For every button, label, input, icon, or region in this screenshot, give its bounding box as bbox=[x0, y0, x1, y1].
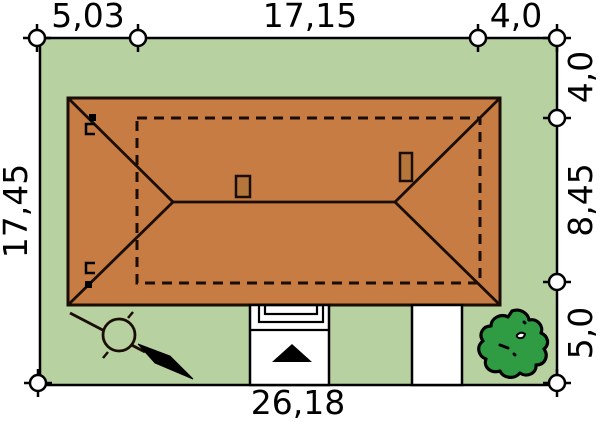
survey-point bbox=[29, 30, 45, 46]
dim-right-top: 4,0 bbox=[564, 51, 598, 103]
dim-top-right: 4,0 bbox=[490, 0, 542, 33]
chimney-right bbox=[400, 153, 412, 181]
site-plan-canvas: 5,03 17,15 4,0 4,0 8,45 5,0 17,45 26,18 bbox=[0, 0, 600, 422]
dim-top-left: 5,03 bbox=[51, 0, 124, 33]
survey-point bbox=[549, 30, 565, 46]
driveway bbox=[412, 305, 462, 385]
dim-left: 17,45 bbox=[0, 164, 33, 258]
survey-point bbox=[30, 375, 46, 391]
dim-bottom: 26,18 bbox=[251, 386, 345, 420]
site-plan-drawing bbox=[0, 0, 600, 422]
dim-top-center: 17,15 bbox=[263, 0, 357, 33]
survey-point bbox=[549, 110, 565, 126]
tree-highlight bbox=[517, 333, 525, 338]
survey-point bbox=[549, 274, 565, 290]
dim-right-bottom: 5,0 bbox=[564, 307, 598, 359]
entrance-walkway bbox=[250, 305, 329, 385]
survey-point bbox=[130, 30, 146, 46]
dim-right-middle: 8,45 bbox=[564, 163, 598, 236]
survey-point bbox=[470, 30, 486, 46]
chimney-left bbox=[236, 176, 250, 197]
survey-point bbox=[549, 375, 565, 391]
